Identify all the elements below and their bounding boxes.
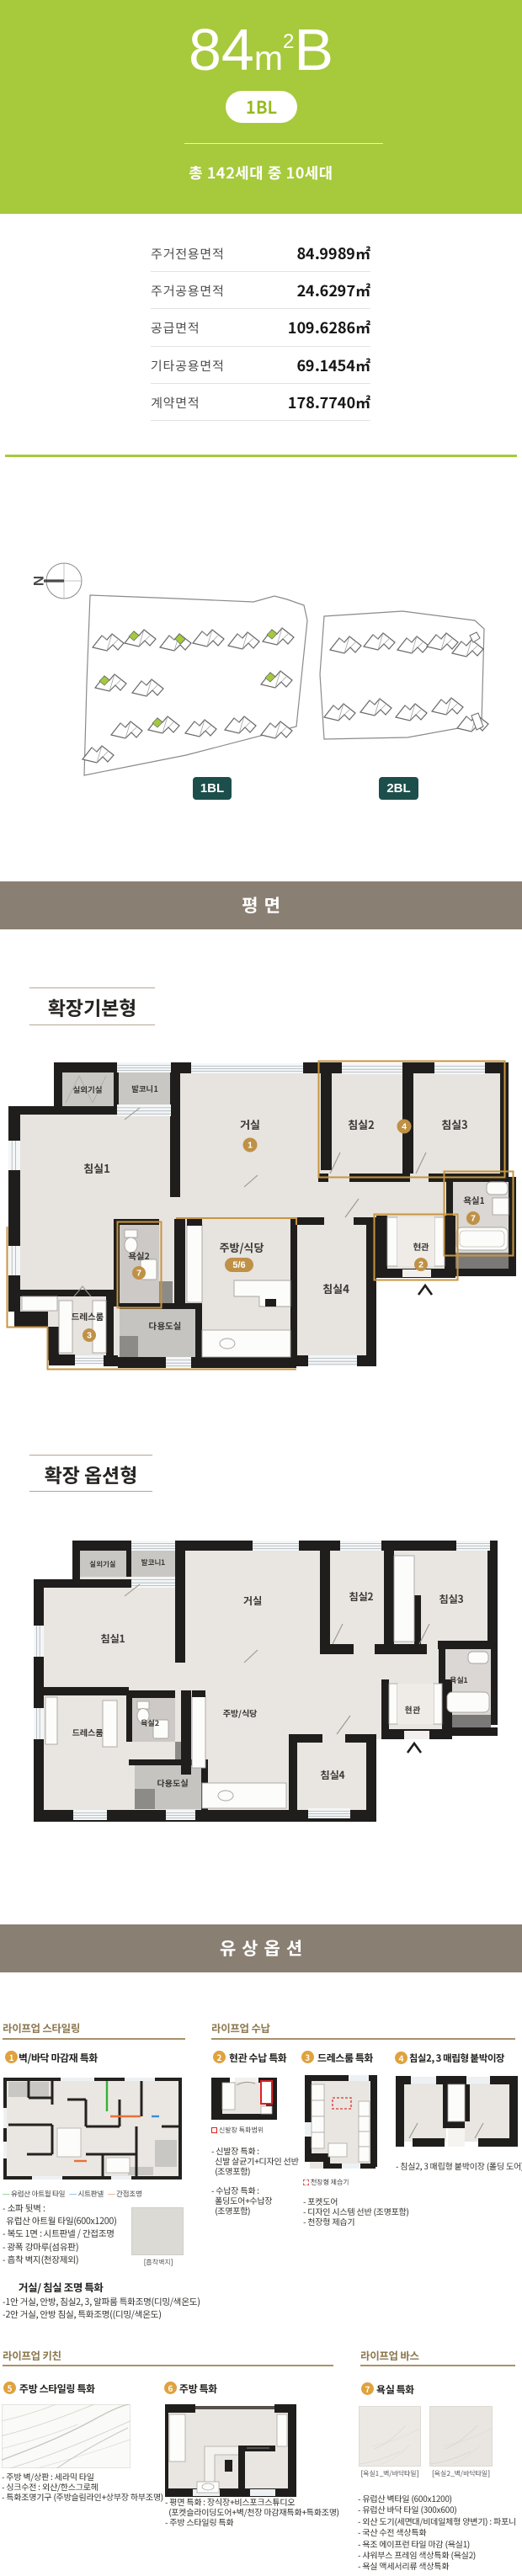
svg-text:7: 7 (136, 1269, 141, 1279)
svg-text:발코니1: 발코니1 (141, 1557, 165, 1567)
svg-text:2: 2 (418, 1260, 423, 1270)
svg-text:발코니1: 발코니1 (131, 1083, 158, 1094)
svg-text:침실2: 침실2 (348, 1116, 375, 1132)
svg-text:침실4: 침실4 (320, 1768, 345, 1782)
svg-text:주방/식당: 주방/식당 (220, 1239, 264, 1255)
svg-text:침실2: 침실2 (349, 1589, 373, 1604)
svg-text:현관: 현관 (405, 1703, 421, 1716)
svg-text:7: 7 (471, 1214, 476, 1224)
svg-text:드레스룸: 드레스룸 (72, 1726, 104, 1738)
svg-text:1: 1 (248, 1141, 253, 1151)
svg-text:침실3: 침실3 (439, 1592, 463, 1606)
svg-text:침실3: 침실3 (441, 1116, 468, 1132)
svg-text:주방/식당: 주방/식당 (223, 1706, 258, 1719)
svg-text:드레스룸: 드레스룸 (72, 1311, 104, 1323)
svg-text:거실: 거실 (242, 1594, 262, 1608)
svg-text:다용도실: 다용도실 (157, 1776, 189, 1789)
svg-text:3: 3 (87, 1331, 92, 1341)
svg-text:거실: 거실 (240, 1116, 260, 1132)
svg-text:실외기실: 실외기실 (89, 1559, 115, 1569)
svg-text:침실4: 침실4 (322, 1280, 349, 1296)
svg-text:N: N (31, 576, 47, 586)
svg-text:4: 4 (402, 1122, 407, 1132)
svg-text:침실1: 침실1 (83, 1160, 110, 1176)
svg-text:욕실1: 욕실1 (463, 1195, 485, 1207)
svg-text:5/6: 5/6 (232, 1260, 245, 1270)
svg-text:욕실2: 욕실2 (141, 1717, 160, 1728)
svg-text:다용도실: 다용도실 (149, 1320, 182, 1333)
svg-text:침실1: 침실1 (100, 1631, 125, 1646)
svg-text:욕실1: 욕실1 (450, 1674, 468, 1685)
svg-text:실외기실: 실외기실 (73, 1083, 103, 1095)
svg-text:현관: 현관 (413, 1241, 429, 1253)
svg-text:욕실2: 욕실2 (128, 1250, 150, 1263)
